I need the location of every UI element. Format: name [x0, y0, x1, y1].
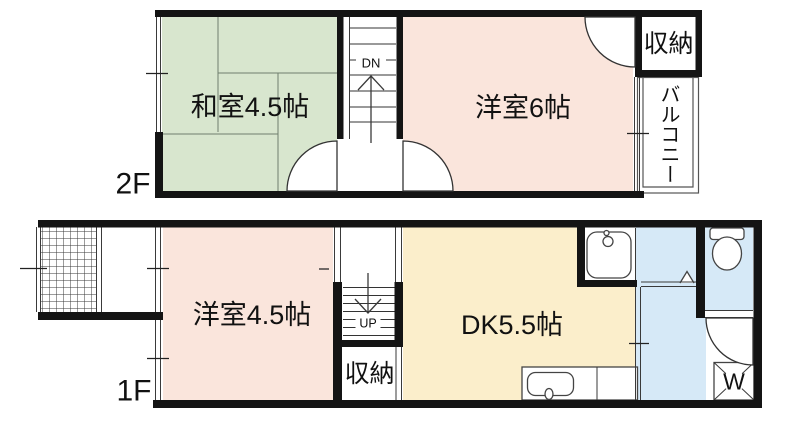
wall-segment — [577, 222, 585, 287]
sink-drain-icon — [545, 389, 553, 400]
wall-segment — [397, 10, 404, 139]
wall-segment — [754, 220, 763, 408]
floor-1f-label: 1F — [116, 375, 151, 408]
staircase-2f: DN — [350, 17, 397, 143]
floor-1f: W UP 洋室4.5帖 — [20, 220, 762, 408]
staircase-1f: UP — [343, 273, 395, 336]
western-room-45-label: 洋室4.5帖 — [193, 300, 312, 330]
wall-segment — [696, 10, 703, 77]
wall-segment — [153, 400, 762, 408]
wall-segment — [577, 280, 637, 287]
western-room-6-label: 洋室6帖 — [475, 93, 571, 123]
bath-faucet-icon — [604, 231, 609, 236]
washer-label: W — [723, 369, 745, 395]
wall-segment — [38, 312, 163, 320]
stair-treads-2f — [350, 28, 396, 122]
balcony: バルコニー — [638, 78, 699, 194]
floorplan-canvas: DN バルコニー 和室4.5帖 洋室6帖 収納 — [0, 0, 800, 426]
wall-segment — [155, 10, 702, 17]
wall-segment — [696, 222, 705, 318]
wall-segment — [333, 340, 403, 347]
bath-drain-icon — [603, 237, 613, 247]
wall-segment — [395, 282, 404, 340]
wall-segment — [337, 10, 344, 139]
wall-segment — [635, 70, 702, 77]
dk-room-label: DK5.5帖 — [461, 310, 563, 340]
balcony-label: バルコニー — [657, 84, 679, 184]
wall-segment — [155, 132, 163, 198]
door-arc-washroom — [706, 318, 753, 365]
closet-1f-label: 収納 — [344, 360, 394, 388]
floor-2f-label: 2F — [115, 168, 150, 201]
washroom-fill — [636, 227, 706, 400]
wall-segment — [38, 220, 762, 228]
wall-segment — [635, 10, 642, 77]
toilet-bowl — [713, 237, 742, 270]
floor-2f: DN バルコニー 和室4.5帖 洋室6帖 収納 — [115, 10, 702, 201]
entrance-hatch-area — [41, 227, 97, 312]
japanese-room-label: 和室4.5帖 — [191, 92, 310, 122]
closet-2f-label: 収納 — [643, 30, 693, 58]
up-label: UP — [359, 317, 376, 331]
floorplan-image: DN バルコニー 和室4.5帖 洋室6帖 収納 — [0, 0, 800, 426]
dn-label: DN — [362, 56, 381, 71]
wall-segment — [155, 191, 644, 198]
